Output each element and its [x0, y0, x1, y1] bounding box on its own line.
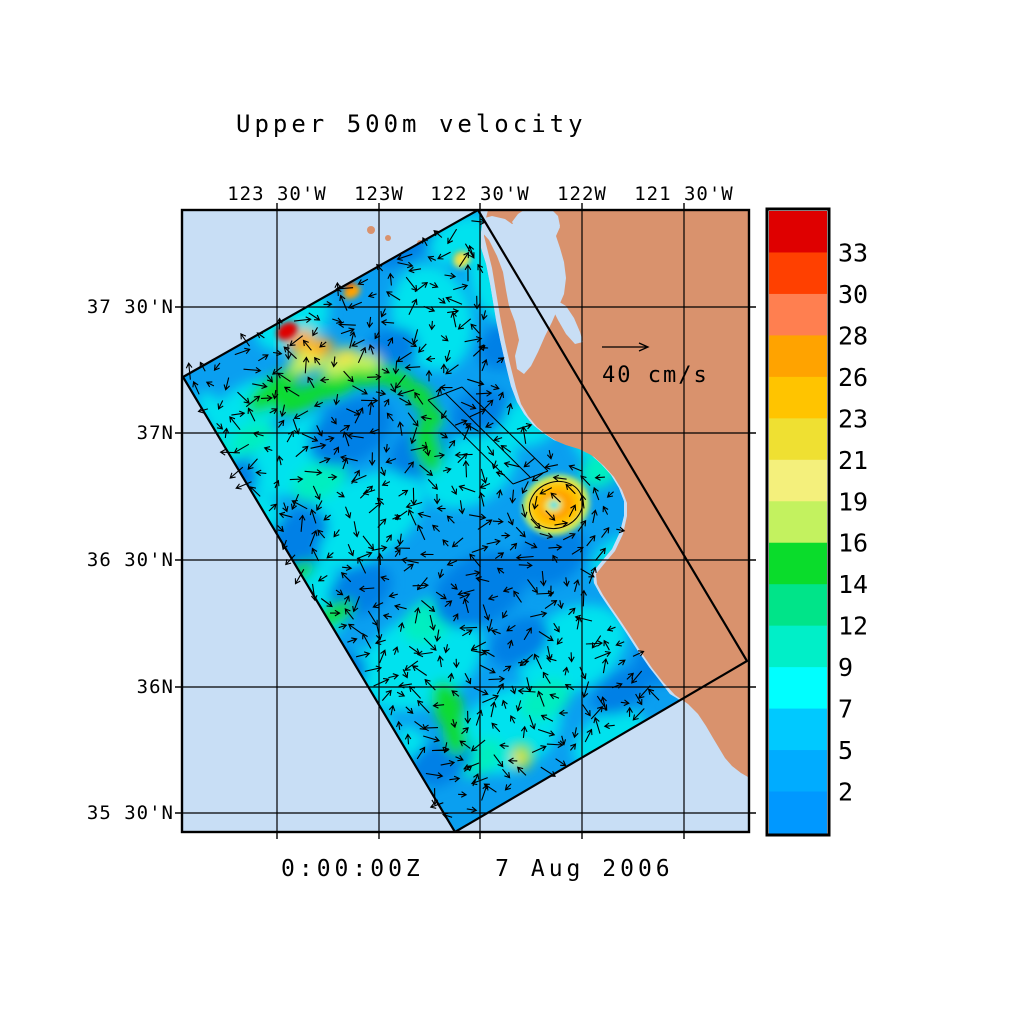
colorbar-segment — [769, 667, 827, 709]
colorbar-label: 7 — [838, 695, 853, 724]
reference-arrow-label: 40 cm/s — [602, 363, 709, 388]
colorbar-segment — [769, 252, 827, 294]
colorbar-segment — [769, 377, 827, 419]
colorbar-label: 23 — [838, 404, 868, 433]
axis-label-longitude: 122W — [557, 183, 607, 205]
timestamp-label: 0:00:00Z 7 Aug 2006 — [281, 856, 674, 882]
axis-label-longitude: 122 30'W — [430, 183, 530, 205]
colorbar-label: 2 — [838, 778, 853, 807]
colorbar-label: 33 — [838, 238, 868, 267]
colorbar-segment — [769, 294, 827, 336]
colorbar-segment — [769, 460, 827, 502]
axis-label-latitude: 37 30'N — [87, 296, 174, 318]
axis-label-latitude: 37N — [137, 422, 174, 444]
colorbar-segment — [769, 626, 827, 668]
velocity-plot-page: Upper 500m velocity 40 cm/s123 30'W123W1… — [0, 0, 1024, 1024]
colorbar-label: 28 — [838, 321, 868, 350]
colorbar-label: 5 — [838, 736, 853, 765]
coastal-islet — [367, 226, 375, 234]
field-blob — [513, 749, 527, 767]
colorbar-segment — [769, 750, 827, 792]
colorbar-segment — [769, 543, 827, 585]
colorbar-segment — [769, 211, 827, 253]
field-blob — [549, 501, 559, 509]
map-area — [179, 202, 749, 835]
coastal-islet — [385, 235, 391, 241]
colorbar-label: 30 — [838, 280, 868, 309]
colorbar-segment — [769, 584, 827, 626]
colorbar-label: 9 — [838, 653, 853, 682]
colorbar-segment — [769, 418, 827, 460]
colorbar-label: 12 — [838, 612, 868, 641]
colorbar-segment — [769, 709, 827, 751]
colorbar-label: 16 — [838, 529, 868, 558]
colorbar-segment — [769, 792, 827, 834]
colorbar-label: 19 — [838, 487, 868, 516]
axis-label-longitude: 121 30'W — [634, 183, 734, 205]
colorbar-label: 26 — [838, 363, 868, 392]
colorbar-segment — [769, 501, 827, 543]
colorbar-label: 14 — [838, 570, 868, 599]
axis-label-latitude: 36N — [137, 676, 174, 698]
axis-label-longitude: 123W — [354, 183, 404, 205]
axis-label-latitude: 36 30'N — [87, 549, 174, 571]
colorbar-label: 21 — [838, 446, 868, 475]
axis-label-latitude: 35 30'N — [87, 802, 174, 824]
axis-label-longitude: 123 30'W — [227, 183, 327, 205]
colorbar-segment — [769, 335, 827, 377]
